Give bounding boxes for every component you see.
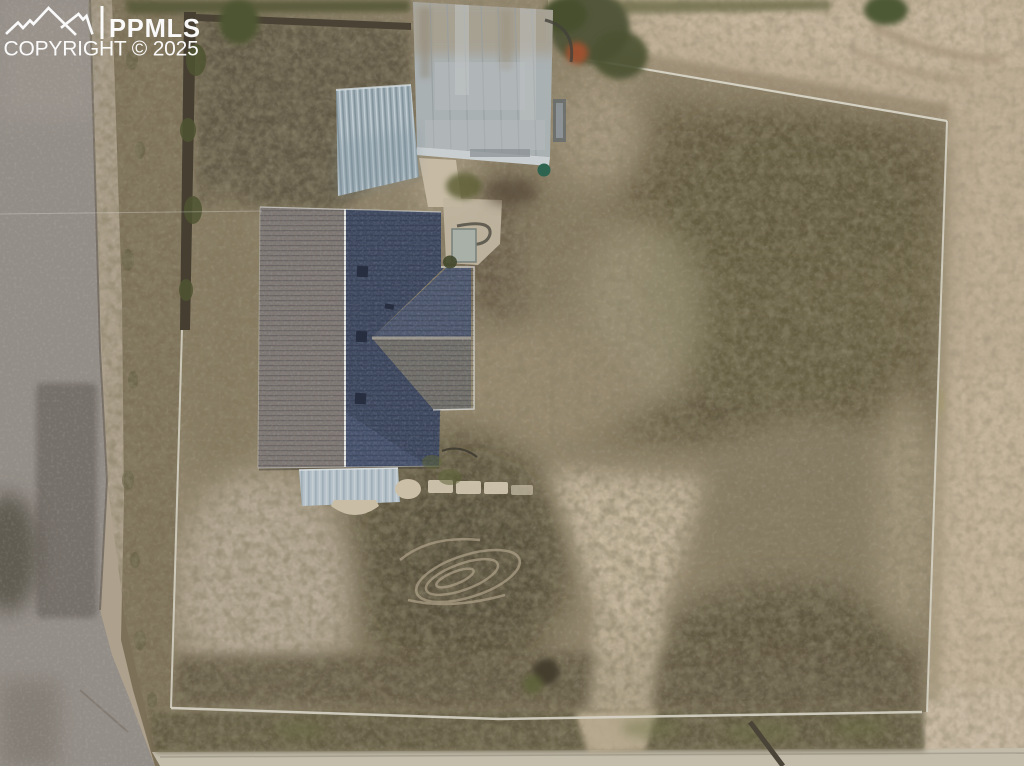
svg-text:COPYRIGHT © 2025: COPYRIGHT © 2025 [4,38,199,61]
